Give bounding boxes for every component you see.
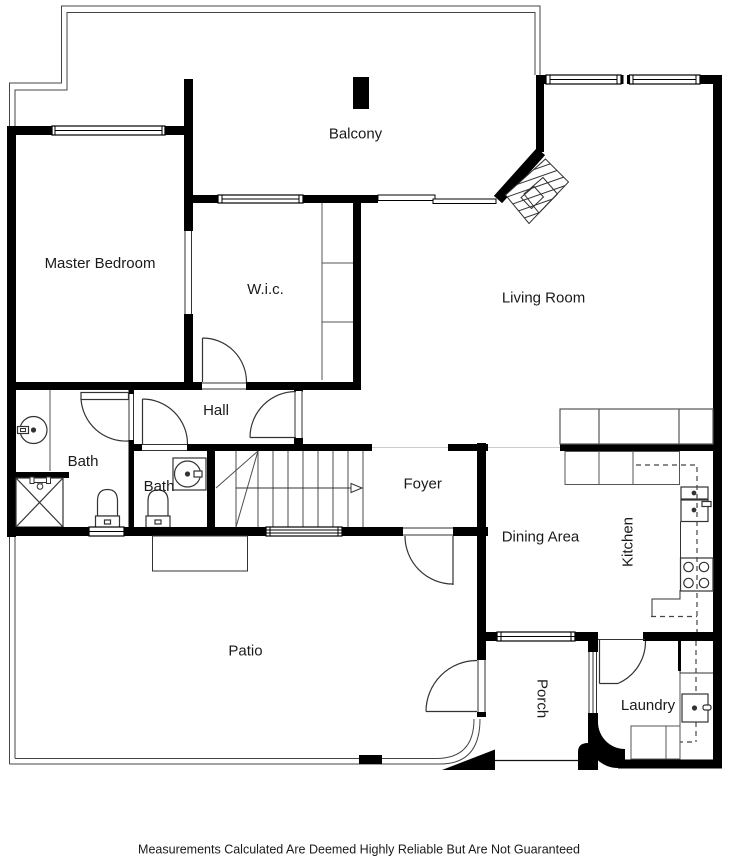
svg-text:Living Room: Living Room	[502, 290, 585, 307]
svg-text:Measurements Calculated Are De: Measurements Calculated Are Deemed Highl…	[138, 843, 580, 857]
svg-text:Laundry: Laundry	[621, 697, 676, 714]
svg-text:Patio: Patio	[228, 643, 262, 660]
svg-text:Bath: Bath	[68, 453, 99, 470]
svg-text:Balcony: Balcony	[329, 126, 383, 143]
svg-text:Master Bedroom: Master Bedroom	[45, 255, 156, 272]
svg-text:Hall: Hall	[203, 402, 229, 419]
svg-text:W.i.c.: W.i.c.	[247, 281, 284, 298]
svg-text:Foyer: Foyer	[404, 475, 442, 492]
svg-text:Porch: Porch	[534, 679, 551, 718]
svg-text:Kitchen: Kitchen	[620, 517, 637, 567]
svg-text:Dining Area: Dining Area	[502, 529, 580, 546]
svg-text:Bath: Bath	[144, 478, 175, 495]
